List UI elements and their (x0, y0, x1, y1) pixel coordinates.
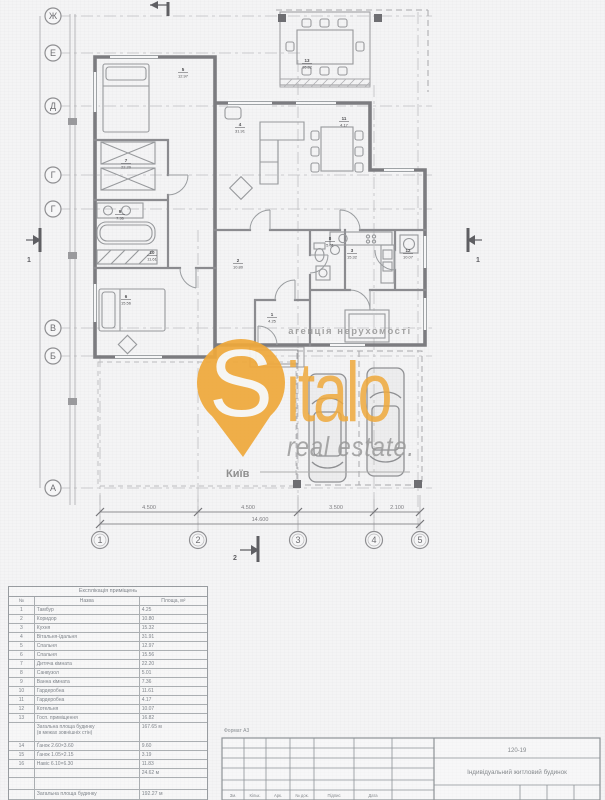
schedule-row: 16Навіс 6.10×6.3011.83 (9, 760, 207, 769)
schedule-row: 6Спальня15.56 (9, 651, 207, 660)
scanned-floor-plan-page: Ж Е Д Г Г В Б А 1 2 3 4 5 (0, 0, 605, 800)
col-header-name: Назва (35, 597, 140, 606)
svg-text:15.32: 15.32 (347, 255, 358, 260)
dining-table (311, 127, 363, 172)
axis-label: 3 (295, 535, 300, 545)
svg-text:4.17: 4.17 (340, 123, 349, 128)
svg-text:5.01: 5.01 (326, 243, 335, 248)
axis-label: Д (50, 101, 56, 111)
axis-label: Ж (49, 11, 58, 21)
schedule-row: 3Кухня15.32 (9, 624, 207, 633)
svg-text:11: 11 (342, 116, 347, 121)
section-label: 2 (233, 555, 237, 562)
section-marker-bottom: 2 (233, 536, 259, 562)
svg-text:16.82: 16.82 (302, 65, 313, 70)
brand-tagline: real estate. (287, 430, 415, 462)
terrace-post (374, 14, 382, 22)
schedule-row: 1Тамбур4.25 (9, 606, 207, 615)
svg-text:1: 1 (271, 312, 274, 317)
svg-text:10: 10 (149, 250, 155, 255)
toilet (314, 243, 325, 262)
axis-label: 4 (371, 535, 376, 545)
section-marker-left: 1 (26, 228, 41, 264)
titleblock-footer-label: Кільк. (250, 793, 261, 798)
bed (103, 64, 149, 132)
watermark: агенція нерухомості S italo real estate.… (197, 326, 415, 480)
axis-label: Е (50, 48, 56, 58)
carport-post (414, 480, 422, 488)
svg-text:3: 3 (351, 248, 354, 253)
schedule-row: 13Госп. приміщення16.82 (9, 714, 207, 723)
schedule-row: 10Гардеробна11.61 (9, 687, 207, 696)
axis-label: 5 (417, 535, 422, 545)
titleblock-footer-label: Підпис (327, 793, 340, 798)
dimension-value: 3.500 (329, 505, 343, 511)
city-label: Київ (226, 468, 250, 480)
schedule-row: 9Ванна кімната7.36 (9, 678, 207, 687)
doors-group (168, 175, 395, 345)
axis-label: 2 (195, 535, 200, 545)
brand-pin: S (197, 330, 285, 457)
svg-text:13: 13 (304, 58, 310, 63)
schedule-spacer-row (9, 778, 207, 790)
axis-label: Б (50, 351, 56, 361)
titleblock-footer-label: Зм. (230, 793, 237, 798)
schedule-row: 14Ґанок 2.60×3.609.60 (9, 742, 207, 751)
dimension-value: 4.500 (241, 505, 255, 511)
svg-text:8: 8 (329, 236, 332, 241)
bathtub (97, 222, 155, 244)
titleblock-footer-label: № док. (295, 793, 308, 798)
svg-text:6: 6 (125, 294, 128, 299)
brand-logo-text: italo (286, 345, 391, 439)
svg-text:4.25: 4.25 (268, 319, 277, 324)
schedule-title: Експлікація приміщень (9, 587, 207, 597)
col-header-num: № (9, 597, 35, 606)
svg-text:10.80: 10.80 (233, 265, 244, 270)
svg-text:2: 2 (237, 258, 240, 263)
svg-text:7.36: 7.36 (116, 216, 125, 221)
schedule-row: 2Коридор10.80 (9, 615, 207, 624)
schedule-row: 8Санвузол5.01 (9, 669, 207, 678)
drawing-code: 120-19 (508, 748, 527, 754)
col-header-area: Площа, м² (140, 597, 207, 606)
axis-bubbles-rows: Ж Е Д Г Г В Б А (45, 8, 61, 496)
terrace (278, 12, 382, 87)
axis-label: Г (51, 170, 56, 180)
svg-text:11.61: 11.61 (147, 257, 157, 262)
axis-label: Г (51, 204, 56, 214)
svg-text:4: 4 (239, 122, 242, 127)
schedule-row: 4Вітальня-їдальня31.91 (9, 633, 207, 642)
wardrobe (101, 168, 155, 190)
dimension-value: 2.100 (390, 505, 404, 511)
schedule-row: 7Дитяча кімната22.20 (9, 660, 207, 669)
schedule-row: 5Спальня12.97 (9, 642, 207, 651)
svg-text:12: 12 (405, 248, 411, 253)
site-boundary-lines (40, 14, 77, 505)
section-marker-right: 1 (467, 228, 482, 264)
axis-bubbles-cols: 1 2 3 4 5 (92, 532, 429, 549)
terrace-post (278, 14, 286, 22)
axis-label: 1 (97, 535, 102, 545)
armchair (225, 107, 241, 119)
bed (99, 289, 165, 331)
svg-text:15.56: 15.56 (121, 301, 132, 306)
svg-text:10.07: 10.07 (403, 255, 414, 260)
schedule-row: 11Гардеробна4.17 (9, 696, 207, 705)
plan-linework: Ж Е Д Г Г В Б А 1 2 3 4 5 (26, 1, 482, 562)
carport-post (293, 480, 301, 488)
dimension-value: 4.500 (142, 505, 156, 511)
brand-letter-s: S (209, 330, 273, 437)
schedule-subtotal-row: Загальна площа будинку(в межах зовнішніх… (9, 723, 207, 742)
schedule-row: 15Ґанок 1.05×2.153.19 (9, 751, 207, 760)
project-name: Індивідуальний житловий будинок (467, 768, 567, 776)
titleblock-footer-label: Дата (368, 793, 378, 798)
section-label: 1 (27, 257, 31, 264)
svg-text:31.91: 31.91 (235, 129, 246, 134)
side-table (118, 335, 136, 353)
axis-label: А (50, 483, 56, 493)
schedule-row: 12Котельня10.07 (9, 705, 207, 714)
dimension-total: 14.600 (252, 517, 269, 523)
section-label: 1 (476, 257, 480, 264)
titleblock-footer-label: Арк. (274, 793, 282, 798)
coffee-table (230, 177, 253, 200)
axis-label: В (50, 323, 56, 333)
section-marker-top (150, 1, 168, 16)
schedule-extra-total-row: 24.62 м (9, 769, 207, 778)
schedule-total-row: Загальна площа будинку 192.27 м (9, 790, 207, 800)
agency-tagline: агенція нерухомості (288, 326, 411, 337)
svg-text:22.20: 22.20 (121, 165, 132, 170)
kitchen-counter (330, 232, 394, 283)
svg-text:12.97: 12.97 (178, 74, 189, 79)
format-label: Формат А3 (224, 728, 249, 734)
title-block: Формат А3 120-19 Індивідуальний житловий… (222, 728, 600, 800)
room-schedule-table: Експлікація приміщень № Назва Площа, м² … (8, 586, 208, 800)
wardrobe (101, 142, 155, 164)
room-labels: 14.25 210.80 315.32 431.91 512.97 615.56… (115, 58, 414, 324)
svg-text:5: 5 (182, 67, 185, 72)
schedule-header-row: № Назва Площа, м² (9, 597, 207, 606)
svg-text:7: 7 (125, 158, 128, 163)
dimension-lines: 4.500 4.500 3.500 2.100 14.600 (96, 495, 424, 530)
